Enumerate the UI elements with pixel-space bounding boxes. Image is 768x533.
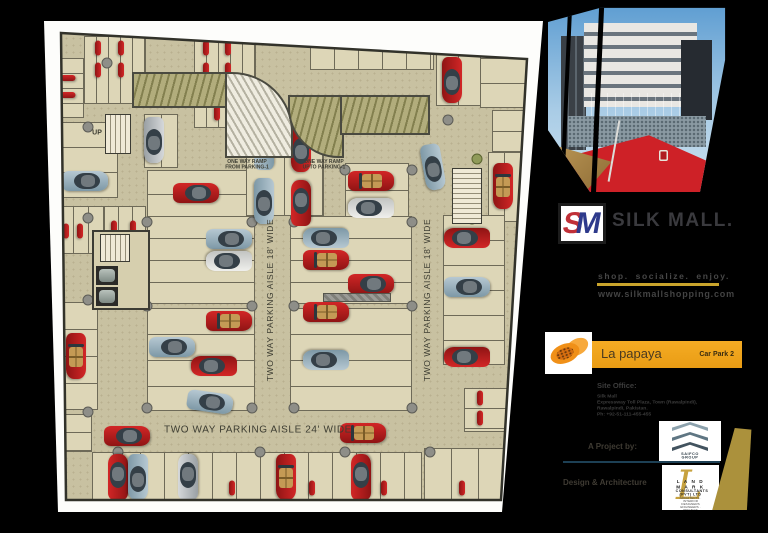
- elevator-1: [96, 266, 118, 285]
- aisle-label: TWO WAY PARKING AISLE 18' WIDE: [422, 219, 432, 381]
- column: [247, 301, 258, 312]
- parking-bank: [464, 388, 508, 432]
- column: [142, 217, 153, 228]
- motorcycle: [225, 41, 231, 56]
- motorcycle: [229, 481, 235, 496]
- parking-bank: [492, 110, 530, 152]
- car-sedan: [104, 426, 150, 446]
- column: [407, 165, 418, 176]
- motorcycle: [95, 41, 101, 56]
- monogram-m: M: [573, 207, 604, 241]
- car-sedan: [173, 183, 219, 203]
- brand-row: S M SILK MALL.: [556, 201, 768, 249]
- project-by-label: A Project by:: [588, 442, 637, 451]
- ramp-label: ONE WAY RAMPUPTO PARKING-1: [303, 159, 346, 171]
- ramp-from-parking1-curve: [225, 72, 293, 158]
- column: [407, 217, 418, 228]
- motorcycle: [309, 481, 315, 496]
- car-sedan: [144, 117, 164, 163]
- motorcycle: [381, 481, 387, 496]
- parking-bank: [480, 58, 532, 108]
- car-sedan: [444, 228, 490, 248]
- car-conv: [493, 163, 513, 209]
- planter-column: [472, 154, 483, 165]
- car-sedan: [206, 251, 252, 271]
- website-url: www.silkmallshopping.com: [598, 289, 735, 299]
- car-sedan: [442, 57, 462, 103]
- car-sedan: [149, 337, 195, 357]
- car-sedan: [351, 454, 371, 500]
- column: [289, 301, 300, 312]
- car-conv: [303, 250, 349, 270]
- column: [102, 58, 113, 69]
- panel-divider: [563, 461, 720, 463]
- site-office-line: Rawalpindi, Pakistan.: [597, 405, 697, 409]
- column: [83, 407, 94, 418]
- aisle-label: TWO WAY PARKING AISLE 18' WIDE: [265, 219, 275, 381]
- car-sedan: [348, 274, 394, 294]
- tagline-underline: [597, 283, 719, 286]
- car-sedan: [303, 228, 349, 248]
- column: [83, 213, 94, 224]
- aisle-label: TWO WAY PARKING AISLE 24' WIDE: [164, 425, 352, 436]
- parking-bank: [56, 414, 92, 452]
- motorcycle: [95, 63, 101, 78]
- column: [407, 301, 418, 312]
- elevator-car-icon: [99, 269, 115, 282]
- ramp-from-parking1-band: [132, 72, 230, 108]
- brand-name: SILK MALL.: [612, 210, 734, 232]
- landmark-services-2: ENGINEERS · PROJECT MANAGEMENT: [676, 506, 706, 510]
- landmark-services-1: ARCHITECTS · INTERIOR DESIGNERS: [676, 497, 706, 506]
- site-office-line: Silk Mall: [597, 393, 697, 397]
- car-conv: [303, 302, 349, 322]
- car-sedan: [62, 171, 108, 191]
- column: [340, 447, 351, 458]
- car-sedan: [303, 350, 349, 370]
- chevron-icon: [672, 432, 708, 441]
- ramp-upto-parking1-band: [340, 95, 430, 135]
- stairs-right: [452, 168, 482, 224]
- landmark-subtitle: CONSULTANTS (PVT) LTD: [676, 489, 706, 496]
- car-sedan: [348, 198, 394, 218]
- car-sedan: [206, 229, 252, 249]
- motorcycle: [203, 41, 209, 56]
- la-papaya-logo: [545, 332, 592, 374]
- car-conv: [348, 171, 394, 191]
- parking-bank: [56, 58, 84, 118]
- column: [289, 403, 300, 414]
- car-conv: [276, 454, 296, 500]
- car-sedan: [191, 356, 237, 376]
- elevator-car-icon: [99, 290, 115, 303]
- motorcycle: [477, 391, 483, 406]
- up-label: UP: [92, 130, 102, 137]
- column: [425, 447, 436, 458]
- site-office-line: Expressway Toll Plaza, Town (Rawalpindi)…: [597, 399, 697, 403]
- motorcycle: [118, 41, 124, 56]
- la-papaya-bar: La papaya Car Park 2: [592, 341, 742, 368]
- site-office-block: Site Office: Silk Mall Expressway Toll P…: [597, 381, 759, 417]
- column: [255, 447, 266, 458]
- car-sedan: [444, 277, 490, 297]
- motorcycle: [77, 224, 83, 239]
- parking-bank: [310, 42, 434, 70]
- car-park-label: Car Park 2: [699, 351, 734, 358]
- landmark-name: L A N D M A R K: [676, 479, 706, 489]
- tagline: shop. socialize. enjoy.: [598, 271, 730, 281]
- site-office-heading: Site Office:: [597, 381, 759, 390]
- column: [407, 403, 418, 414]
- car-sedan: [254, 178, 274, 224]
- motorcycle: [61, 75, 76, 81]
- landmark-logo: L L A N D M A R K CONSULTANTS (PVT) LTD …: [662, 465, 719, 510]
- elevator-2: [96, 287, 118, 306]
- ramp-label: ONE WAY RAMPFROM PARKING-1: [225, 159, 269, 171]
- column: [142, 403, 153, 414]
- car-conv: [206, 311, 252, 331]
- motorcycle: [477, 411, 483, 426]
- parking-bank: [424, 448, 506, 502]
- motorcycle: [63, 224, 69, 239]
- stairs-top-left: [105, 114, 131, 154]
- motorcycle: [459, 481, 465, 496]
- site-office-line: Ph: +92-51-111-455-455: [597, 411, 697, 415]
- la-papaya-name: La papaya: [601, 346, 662, 361]
- saifco-logo-text: SAIFCO GROUP: [673, 452, 707, 460]
- stairs-mid-left: [100, 234, 130, 262]
- poster-canvas: TWO WAY PARKING AISLE 18' WIDETWO WAY PA…: [0, 0, 768, 533]
- car-conv: [66, 333, 86, 379]
- car-sedan: [128, 454, 148, 500]
- speed-bump: [323, 293, 391, 302]
- column: [443, 115, 454, 126]
- chevron-icon: [672, 422, 708, 431]
- motorcycle: [118, 63, 124, 78]
- motorcycle: [61, 92, 76, 98]
- column: [247, 403, 258, 414]
- chevron-icon: [672, 442, 708, 451]
- silk-mall-monogram: S M: [558, 203, 606, 244]
- entrance-sign: [659, 150, 668, 161]
- car-sedan: [419, 143, 447, 192]
- car-sedan: [291, 180, 311, 226]
- car-sedan: [444, 347, 490, 367]
- design-architecture-label: Design & Architecture: [563, 478, 647, 487]
- building-photo: [546, 6, 728, 196]
- saifco-logo: SAIFCO GROUP: [659, 421, 721, 461]
- car-sedan: [178, 454, 198, 500]
- landmark-logo-text: L A N D M A R K CONSULTANTS (PVT) LTD AR…: [676, 479, 706, 510]
- car-sedan: [108, 454, 128, 500]
